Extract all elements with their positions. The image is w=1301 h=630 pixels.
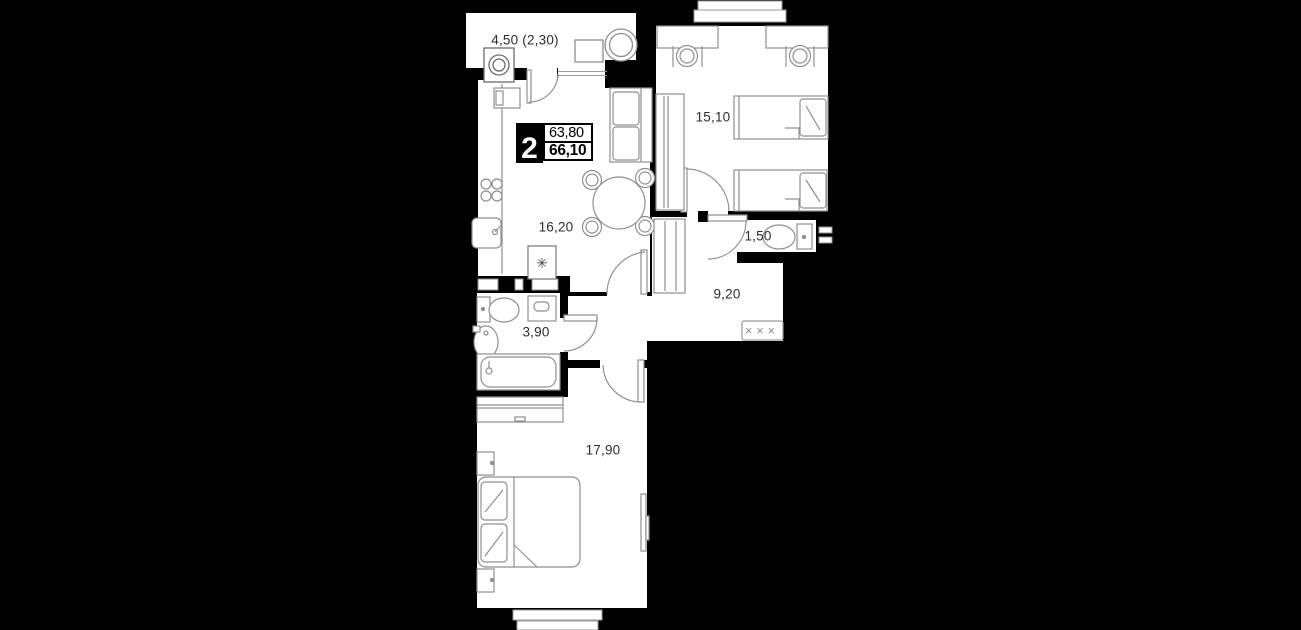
- armchair-icon: [605, 29, 637, 61]
- duct-box: [819, 227, 832, 233]
- room-label-hallway: 9,20: [713, 287, 740, 302]
- room-hallway-join: [647, 296, 652, 341]
- dining-table-icon: [593, 177, 645, 229]
- duct-box: [819, 237, 832, 243]
- coat-hooks-symbol: ×××: [745, 324, 779, 338]
- floorplan-canvas: ✳ ××× 4,50 (2,30) 16,20 15,10 1,50 9,20 …: [0, 0, 1301, 630]
- wardrobe-icon: [477, 397, 563, 422]
- side-table-icon: [575, 40, 603, 62]
- apartment-info-badge: 2 63,80 66,10: [516, 123, 593, 163]
- shelf-icon: [528, 296, 556, 321]
- bathroom-door-opening: [560, 318, 568, 352]
- washbasin-icon: [473, 326, 498, 358]
- area-total: 66,10: [543, 141, 593, 161]
- window-bottom-inner: [517, 621, 598, 630]
- wall-bathroom-lower: [560, 352, 568, 397]
- nightstand-knob: [491, 462, 494, 465]
- door-leaf-bedroom-bottom: [638, 360, 644, 402]
- washing-machine-icon: [484, 48, 514, 82]
- desk-icon: [657, 26, 718, 48]
- vent-wall-wc: [816, 212, 836, 260]
- wardrobe-icon: [656, 94, 684, 210]
- sofa-icon: [610, 88, 652, 162]
- door-leaf-bathroom: [564, 315, 597, 321]
- wall-stub-wc-hinge: [698, 211, 708, 222]
- fridge-icon: [494, 88, 520, 108]
- room-label-kitchen-living: 16,20: [539, 220, 574, 235]
- rooms-count: 2: [516, 123, 543, 163]
- toilet-icon: [477, 297, 519, 322]
- door-leaf-living: [641, 250, 647, 294]
- room-label-bathroom: 3,90: [522, 325, 549, 340]
- wall-wc-bottom: [737, 252, 783, 263]
- single-bed-icon: [734, 96, 828, 139]
- nightstand-knob: [491, 579, 494, 582]
- room-label-balcony: 4,50 (2,30): [491, 33, 559, 48]
- door-leaf-balcony: [527, 70, 531, 103]
- single-bed-icon: [734, 170, 827, 211]
- window-bay-top-inner: [694, 10, 786, 22]
- boiler-symbol: ✳: [536, 255, 548, 271]
- duct-box: [515, 279, 523, 290]
- balcony-window-opening: [558, 68, 607, 80]
- desk-icon: [766, 26, 828, 48]
- room-label-wc: 1,50: [744, 229, 771, 244]
- window-bottom-outer: [513, 610, 602, 620]
- room-label-bedroom-top: 15,10: [696, 110, 731, 125]
- duct-box: [478, 279, 498, 290]
- duct-box: [532, 279, 558, 290]
- floorplan: ✳ ×××: [0, 0, 1301, 630]
- room-hallway-west: [568, 296, 647, 360]
- area-cells: 63,80 66,10: [543, 123, 593, 163]
- bathtub-icon: [477, 354, 560, 390]
- bedroom-bottom-door-opening: [600, 360, 643, 368]
- hall-cabinet-icon: [654, 219, 685, 293]
- door-leaf-wc: [708, 215, 747, 221]
- window-bay-top-outer: [698, 1, 782, 10]
- wall-stub-sofa: [605, 60, 650, 88]
- room-label-bedroom-bottom: 17,90: [586, 443, 621, 458]
- double-bed-icon: [478, 477, 580, 567]
- kitchen-sink-icon: [472, 218, 501, 248]
